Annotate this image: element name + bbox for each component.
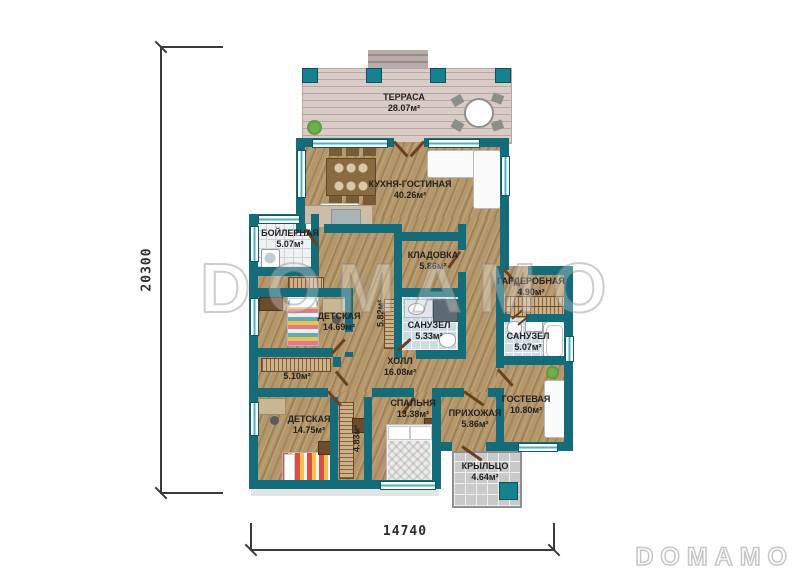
window xyxy=(501,156,510,196)
wall-segment xyxy=(372,388,414,397)
window xyxy=(518,443,558,452)
room-name: ТЕРРАСА xyxy=(344,92,464,103)
dimension-tick xyxy=(161,492,223,494)
dimension-value-vertical: 20300 xyxy=(140,235,155,305)
terrace-post xyxy=(302,68,318,83)
window xyxy=(297,150,306,198)
window xyxy=(258,215,300,224)
room-area: 16.08м² xyxy=(366,367,434,378)
room-label-guest-room: ГОСТЕВАЯ 10.80м² xyxy=(490,394,562,416)
window xyxy=(380,481,436,490)
plant-icon xyxy=(546,366,559,379)
dimension-value-horizontal: 14740 xyxy=(370,524,440,539)
room-label-corridor-510: 5.10м² xyxy=(267,371,327,382)
wall-segment xyxy=(432,388,464,397)
wall-segment xyxy=(458,224,466,250)
wall-segment xyxy=(432,442,452,451)
room-label-corridor-483: 4.83м² xyxy=(352,416,363,460)
wall-segment xyxy=(496,356,573,365)
desk xyxy=(258,398,286,415)
room-label-porch: КРЫЛЬЦО 4.64м² xyxy=(450,461,520,483)
wall-segment xyxy=(345,352,353,357)
room-area: 5.86м² xyxy=(436,419,514,430)
room-label-terrace: ТЕРРАСА 28.07м² xyxy=(344,92,464,114)
room-name: ХОЛЛ xyxy=(366,356,434,367)
room-area: 5.33м² xyxy=(394,331,464,342)
wall-segment xyxy=(364,397,372,481)
dresser xyxy=(261,358,331,372)
room-area: 10.80м² xyxy=(490,405,562,416)
wall-segment xyxy=(330,397,338,481)
room-label-boiler: БОЙЛЕРНАЯ 5.07м² xyxy=(252,228,328,250)
window xyxy=(428,139,480,148)
room-label-kitchen-living: КУХНЯ-ГОСТИНАЯ 40.26м² xyxy=(340,179,480,201)
room-name: КУХНЯ-ГОСТИНАЯ xyxy=(340,179,480,190)
chair xyxy=(346,147,359,156)
window xyxy=(250,402,259,436)
room-area: 5.07м² xyxy=(494,342,562,353)
wall-segment xyxy=(394,232,466,241)
wall-segment xyxy=(249,348,333,357)
terrace-post xyxy=(495,68,511,83)
dimension-tick xyxy=(553,523,555,551)
room-area: 14.75м² xyxy=(270,425,348,436)
porch-step xyxy=(499,482,518,500)
pillow xyxy=(410,426,432,440)
window xyxy=(312,139,388,148)
round-table xyxy=(464,98,494,128)
watermark-text: DOMAMO xyxy=(200,248,640,328)
terrace-post xyxy=(366,68,382,83)
room-name: БОЙЛЕРНАЯ xyxy=(252,228,328,239)
plant-icon xyxy=(307,120,322,135)
room-label-bathroom-2: САНУЗЕЛ 5.07м² xyxy=(494,331,562,353)
room-area: 28.07м² xyxy=(344,103,464,114)
window xyxy=(565,336,574,362)
dimension-line-horizontal xyxy=(251,549,555,551)
room-name: ДЕТСКАЯ xyxy=(270,414,348,425)
room-label-hall: ХОЛЛ 16.08м² xyxy=(366,356,434,378)
wall-segment xyxy=(324,224,402,233)
wall-segment xyxy=(333,357,341,367)
double-bed xyxy=(386,424,434,486)
terrace-steps xyxy=(368,50,428,70)
chair xyxy=(329,147,342,156)
room-label-children-2: ДЕТСКАЯ 14.75м² xyxy=(270,414,348,436)
room-name: КРЫЛЬЦО xyxy=(450,461,520,472)
floor-plan: ТЕРРАСА 28.07м² КУХНЯ-ГОСТИНАЯ 40.26м² Б… xyxy=(0,0,800,580)
room-area: 5.10м² xyxy=(267,371,327,382)
terrace-post xyxy=(430,68,446,83)
kitchen-sink xyxy=(331,209,361,225)
blanket xyxy=(388,441,430,482)
room-area: 4.83м² xyxy=(352,416,363,460)
dimension-line-vertical xyxy=(160,46,162,494)
room-area: 4.64м² xyxy=(450,472,520,483)
room-name: САНУЗЕЛ xyxy=(494,331,562,342)
chair xyxy=(363,147,376,156)
pillow xyxy=(284,454,295,482)
pillow xyxy=(388,426,410,440)
foundation-strip xyxy=(251,489,439,496)
wall-segment xyxy=(249,388,328,397)
room-name: ГОСТЕВАЯ xyxy=(490,394,562,405)
dimension-tick xyxy=(250,523,252,551)
dimension-tick xyxy=(161,46,223,48)
brand-logo: DOMAMO xyxy=(622,543,794,572)
room-area: 40.26м² xyxy=(340,190,480,201)
